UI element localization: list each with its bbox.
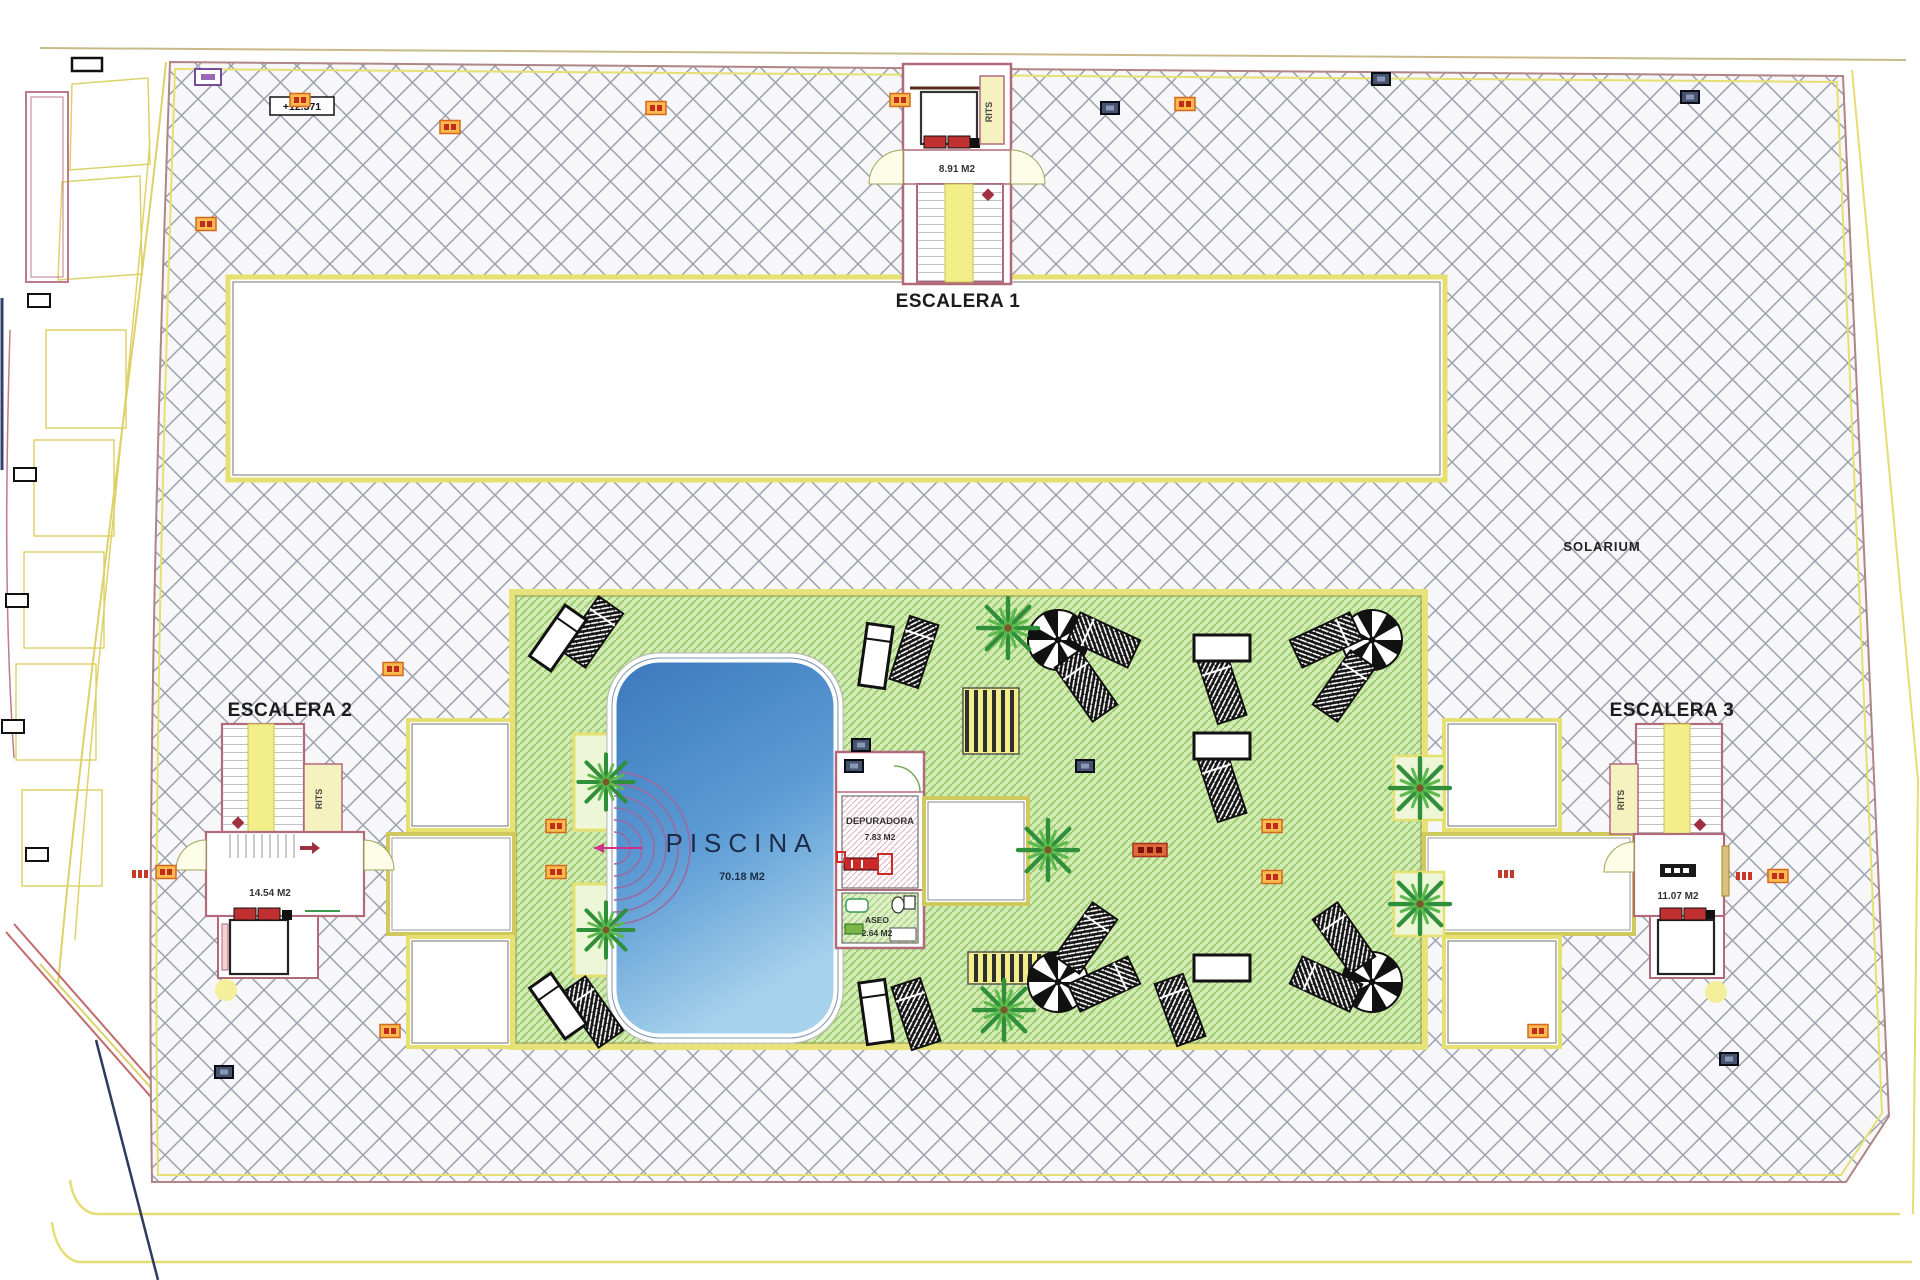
stairwell-1-area-label: 8.91 M2 — [939, 164, 976, 175]
reference-chip-purple — [195, 69, 221, 85]
stairwell-1-rits-label: RITS — [984, 102, 994, 123]
stairwell-3-label: ESCALERA 3 — [1610, 700, 1735, 721]
floor-plan-canvas: PISCINA 70.18 M2 DEPURADORA 7.83 M2 ASEO… — [0, 0, 1920, 1280]
toilet-area-label: 2.64 M2 — [862, 928, 893, 938]
terrace-pad — [924, 798, 1028, 904]
palm-tree — [1390, 874, 1450, 934]
wall-ticks — [2, 58, 102, 861]
stairwell-3-area-label: 11.07 M2 — [1657, 891, 1699, 902]
palm-tree — [978, 598, 1038, 658]
palm-tree — [578, 754, 633, 809]
floor-plan-page: PISCINA 70.18 M2 DEPURADORA 7.83 M2 ASEO… — [0, 0, 1920, 1280]
stairwell-3-rits-label: RITS — [1616, 790, 1626, 811]
palm-tree — [578, 902, 633, 957]
stairwell-1-label: ESCALERA 1 — [896, 291, 1021, 312]
plant-room-label: DEPURADORA — [846, 816, 914, 827]
swimming-pool: PISCINA 70.18 M2 — [594, 653, 843, 1043]
toilet-chip — [845, 924, 863, 934]
stairwell-2-rits-label: RITS — [314, 789, 324, 810]
stairwell-2-label: ESCALERA 2 — [228, 700, 353, 721]
pool-area-label: 70.18 M2 — [719, 871, 765, 883]
toilet-label: ASEO — [865, 915, 889, 925]
toilet-door — [890, 928, 916, 941]
palm-tree — [1018, 820, 1078, 880]
sink-fixture — [846, 899, 868, 912]
stairwell-3-tag — [1660, 864, 1696, 877]
solarium-label: SOLARIUM — [1563, 539, 1640, 554]
palm-tree — [974, 980, 1034, 1040]
pool-label: PISCINA — [665, 828, 818, 858]
roof-void — [228, 277, 1445, 480]
plant-room-area-label: 7.83 M2 — [865, 832, 896, 842]
palm-tree — [1390, 758, 1450, 818]
plant-room-block: DEPURADORA 7.83 M2 ASEO 2.64 M2 — [836, 752, 924, 948]
stairwell-2-area-label: 14.54 M2 — [249, 888, 291, 899]
